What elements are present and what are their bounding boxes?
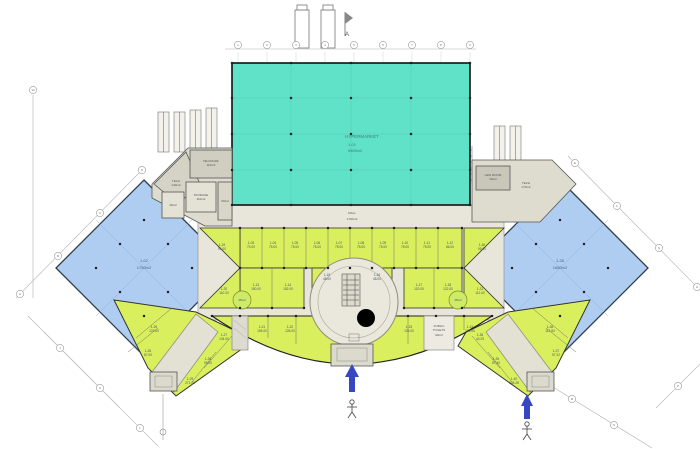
column-dot	[231, 62, 233, 64]
anchor-left-code: 1-02	[140, 258, 149, 263]
column-dot	[95, 267, 97, 269]
column-dot	[143, 315, 145, 317]
column-dot	[607, 267, 609, 269]
column-dot	[143, 219, 145, 221]
dim-line-bottom-left-2	[28, 316, 120, 408]
unit-area: 120.00	[414, 287, 424, 291]
shaft-1-cap	[297, 5, 307, 10]
column-dot	[410, 204, 412, 206]
column-dot	[371, 267, 373, 269]
loading-docks-left	[158, 108, 217, 152]
unit-label: 1-1548.00	[323, 273, 331, 281]
roof-shafts	[295, 5, 335, 48]
entrance-vestibule-left	[150, 372, 177, 391]
column-dot	[535, 243, 537, 245]
floor-plan-drawing: A HYPERMARKET 1-01	[0, 0, 700, 449]
column-dot	[559, 315, 561, 317]
column-dot	[119, 243, 121, 245]
column-dot	[191, 267, 193, 269]
entrance-arrow-right	[521, 394, 533, 406]
central-rotunda	[310, 258, 398, 346]
scale-figures	[347, 400, 532, 440]
column-dot	[303, 307, 305, 309]
unit-label: 1-0475.00	[269, 241, 277, 249]
unit-area: 97.32	[552, 353, 560, 357]
unit-label: 1-1175.00	[423, 241, 431, 249]
svg-text:1750m2: 1750m2	[137, 265, 152, 270]
extension-ticks	[238, 52, 470, 63]
column-dot	[271, 307, 273, 309]
unit-label: 1-1075.00	[401, 241, 409, 249]
column-dot	[415, 267, 417, 269]
mall-name: MALL	[348, 211, 356, 215]
room-40-label: 40m2	[169, 203, 177, 207]
column-dot	[327, 227, 329, 229]
unit-area: 105.00	[257, 329, 267, 333]
column-dot	[119, 291, 121, 293]
unit-area: 95.00	[478, 247, 486, 251]
unit-area: 87.00	[144, 353, 152, 357]
scale-figure-head	[350, 400, 354, 404]
unit-area: 95.00	[204, 361, 212, 365]
storage-area: 110m2	[197, 197, 206, 201]
column-dot	[349, 267, 351, 269]
column-dot	[290, 97, 292, 99]
column-dot	[261, 267, 263, 269]
svg-text:110m2: 110m2	[197, 197, 206, 201]
unit-area: 105.00	[465, 329, 475, 333]
unit-label: 1-0875.00	[357, 241, 365, 249]
unit-label: 1-3797.32	[552, 349, 560, 357]
escalator-icon	[342, 274, 360, 306]
unit-label: 1-2895.00	[204, 357, 212, 365]
unit-area: 245.28	[509, 381, 519, 385]
dim-line-bottom-right-1	[548, 384, 652, 448]
unit-area: 152.00	[283, 287, 293, 291]
unit-area: 87.40	[492, 361, 500, 365]
unit-area: 122.00	[443, 287, 453, 291]
floor-plan-canvas: A HYPERMARKET 1-01	[0, 0, 700, 449]
column-dot	[410, 97, 412, 99]
unit-area: 74.00	[247, 245, 255, 249]
column-dot	[167, 291, 169, 293]
column-dot	[469, 204, 471, 206]
scale-figure-leg	[527, 434, 531, 440]
unit-area: 75.00	[291, 245, 299, 249]
unit-label: 1-3987.40	[492, 357, 500, 365]
unit-area: 75.00	[423, 245, 431, 249]
column-dot	[350, 62, 352, 64]
unit-area: 48.00	[323, 277, 331, 281]
column-dot	[403, 307, 405, 309]
grid-bubble-label: N	[613, 423, 615, 427]
column-dot	[393, 227, 395, 229]
unit-area: 126.00	[404, 329, 414, 333]
elevator-icon	[357, 309, 375, 327]
unit-area: 44.25	[476, 337, 484, 341]
column-dot	[350, 97, 352, 99]
svg-text:40m2: 40m2	[489, 177, 497, 181]
column-dot	[167, 243, 169, 245]
column-dot	[231, 169, 233, 171]
unit-area: 75.00	[379, 245, 387, 249]
svg-text:1680m2: 1680m2	[553, 265, 568, 270]
column-dot	[283, 267, 285, 269]
section-marker-flag	[345, 12, 353, 24]
unit-area: 150.00	[251, 287, 261, 291]
column-dot	[290, 133, 292, 135]
grid-bubble-label: K	[99, 386, 101, 390]
gen-room-area: 40m2	[489, 177, 497, 181]
column-dot	[393, 267, 395, 269]
column-dot	[535, 291, 537, 293]
shaft-2-cap	[323, 5, 333, 10]
unit-area: 75.00	[313, 245, 321, 249]
column-dot	[410, 62, 412, 64]
entrance-center	[331, 344, 373, 392]
column-dot	[295, 315, 297, 317]
scale-figure-leg	[523, 434, 527, 440]
room-50-label: 50m2	[221, 199, 229, 203]
grid-bubble-label: A	[19, 292, 21, 296]
column-dot	[261, 227, 263, 229]
scale-figure-leg	[352, 412, 356, 418]
tech-block-left	[152, 148, 232, 226]
anchor-right-area: 1680m2	[553, 265, 568, 270]
column-dot	[350, 169, 352, 171]
column-dot	[290, 169, 292, 171]
unit-label: 1-0575.00	[291, 241, 299, 249]
column-dot	[437, 267, 439, 269]
svg-text:1700m2: 1700m2	[347, 217, 358, 221]
column-dot	[415, 227, 417, 229]
column-dot	[511, 267, 513, 269]
grid-bubble-label: E	[574, 161, 576, 165]
anchor-right-code: 1-35	[556, 258, 565, 263]
anchor-left-area: 1750m2	[137, 265, 152, 270]
unit-label: 1-1995.00	[218, 243, 226, 251]
unit-area: 112.84	[545, 329, 555, 333]
column-dot	[469, 62, 471, 64]
grid-bubble-label: 10	[31, 88, 35, 92]
svg-text:170m2: 170m2	[521, 185, 531, 189]
unit-area: 112.00	[475, 291, 485, 295]
svg-text:40m2: 40m2	[169, 203, 177, 207]
svg-text:35m2: 35m2	[238, 298, 246, 302]
svg-text:90m2: 90m2	[435, 333, 443, 337]
unit-label: 1-0374.00	[247, 241, 255, 249]
toilets-line2: TOILETS	[433, 328, 445, 332]
loading-docks-right	[494, 126, 521, 162]
unit-area: 110.00	[219, 291, 229, 295]
unit-area: 95.00	[218, 247, 226, 251]
column-dot	[559, 219, 561, 221]
column-dot	[469, 169, 471, 171]
svg-text:110m2: 110m2	[207, 163, 216, 167]
unit-label: 1-3844.25	[476, 333, 484, 341]
column-dot	[433, 307, 435, 309]
kiosk-right-label: 35m2	[454, 298, 462, 302]
unit-label: 1-3095.00	[478, 243, 486, 251]
unit-area: 75.00	[269, 245, 277, 249]
defroze-area: 110m2	[207, 163, 216, 167]
section-marker-letter: A	[345, 32, 349, 38]
svg-text:TOILETS: TOILETS	[433, 328, 445, 332]
unit-area: 75.00	[357, 245, 365, 249]
column-dot	[349, 227, 351, 229]
unit-label: 1-0675.00	[313, 241, 321, 249]
column-dot	[267, 315, 269, 317]
svg-text:MALL: MALL	[348, 211, 356, 215]
scale-figure-head	[525, 422, 529, 426]
column-dot	[461, 267, 463, 269]
unit-label: 1-0775.00	[335, 241, 343, 249]
column-dot	[350, 204, 352, 206]
unit-area: 48.00	[373, 277, 381, 281]
column-dot	[290, 204, 292, 206]
column-dot	[239, 307, 241, 309]
hypermarket-code: 1-01	[348, 142, 357, 147]
column-dot	[583, 291, 585, 293]
column-dot	[305, 267, 307, 269]
column-dot	[239, 227, 241, 229]
tech-left-area: 140m2	[171, 183, 181, 187]
column-dot	[410, 169, 412, 171]
unit-area: 123.00	[149, 329, 159, 333]
unit-area: 126.00	[285, 329, 295, 333]
column-dot	[305, 227, 307, 229]
svg-text:140m2: 140m2	[171, 183, 181, 187]
grid-bubble-label: H	[696, 285, 698, 289]
column-dot	[371, 227, 373, 229]
mall-area: 1700m2	[347, 217, 358, 221]
grid-bubble-label: B	[57, 254, 59, 258]
column-dot	[491, 315, 493, 317]
column-dot	[410, 133, 412, 135]
svg-text:1-35: 1-35	[556, 258, 565, 263]
entrance-vestibule-center	[331, 344, 373, 366]
column-dot	[437, 227, 439, 229]
column-dot	[463, 315, 465, 317]
grid-bubble-label: P	[677, 384, 679, 388]
svg-text:35m2: 35m2	[454, 298, 462, 302]
toilets-area: 90m2	[435, 333, 443, 337]
unit-area: 104.00	[219, 337, 229, 341]
unit-area: 75.00	[335, 245, 343, 249]
svg-text:50m2: 50m2	[221, 199, 229, 203]
svg-text:1-02: 1-02	[140, 258, 149, 263]
unit-area: 75.00	[401, 245, 409, 249]
column-dot	[407, 315, 409, 317]
grid-bubble-label: F	[616, 204, 618, 208]
unit-area: 271.00	[185, 381, 195, 385]
column-dot	[239, 267, 241, 269]
column-dot	[350, 133, 352, 135]
column-dot	[435, 315, 437, 317]
unit-label: 1-2687.00	[144, 349, 152, 357]
unit-label: 1-0975.00	[379, 241, 387, 249]
column-dot	[327, 267, 329, 269]
column-dot	[469, 97, 471, 99]
scale-figure-leg	[348, 412, 352, 418]
unit-area: 86.00	[446, 245, 454, 249]
unit-label: 1-1286.00	[446, 241, 454, 249]
unit-label: 1-1648.00	[373, 273, 381, 281]
column-dot	[461, 307, 463, 309]
entrance-vestibule-right	[527, 372, 554, 391]
column-dot	[231, 133, 233, 135]
column-dot	[290, 62, 292, 64]
column-dot	[231, 204, 233, 206]
column-dot	[469, 133, 471, 135]
column-dot	[239, 315, 241, 317]
column-dot	[231, 97, 233, 99]
tech-right-area: 170m2	[521, 185, 531, 189]
entrance-wing-left	[150, 372, 177, 440]
column-dot	[211, 315, 213, 317]
section-marker: A	[345, 12, 353, 38]
hypermarket-area-label: 5965m2	[348, 148, 363, 153]
column-dot	[461, 227, 463, 229]
column-dot	[583, 243, 585, 245]
column-dot	[283, 227, 285, 229]
kiosk-left-label: 35m2	[238, 298, 246, 302]
